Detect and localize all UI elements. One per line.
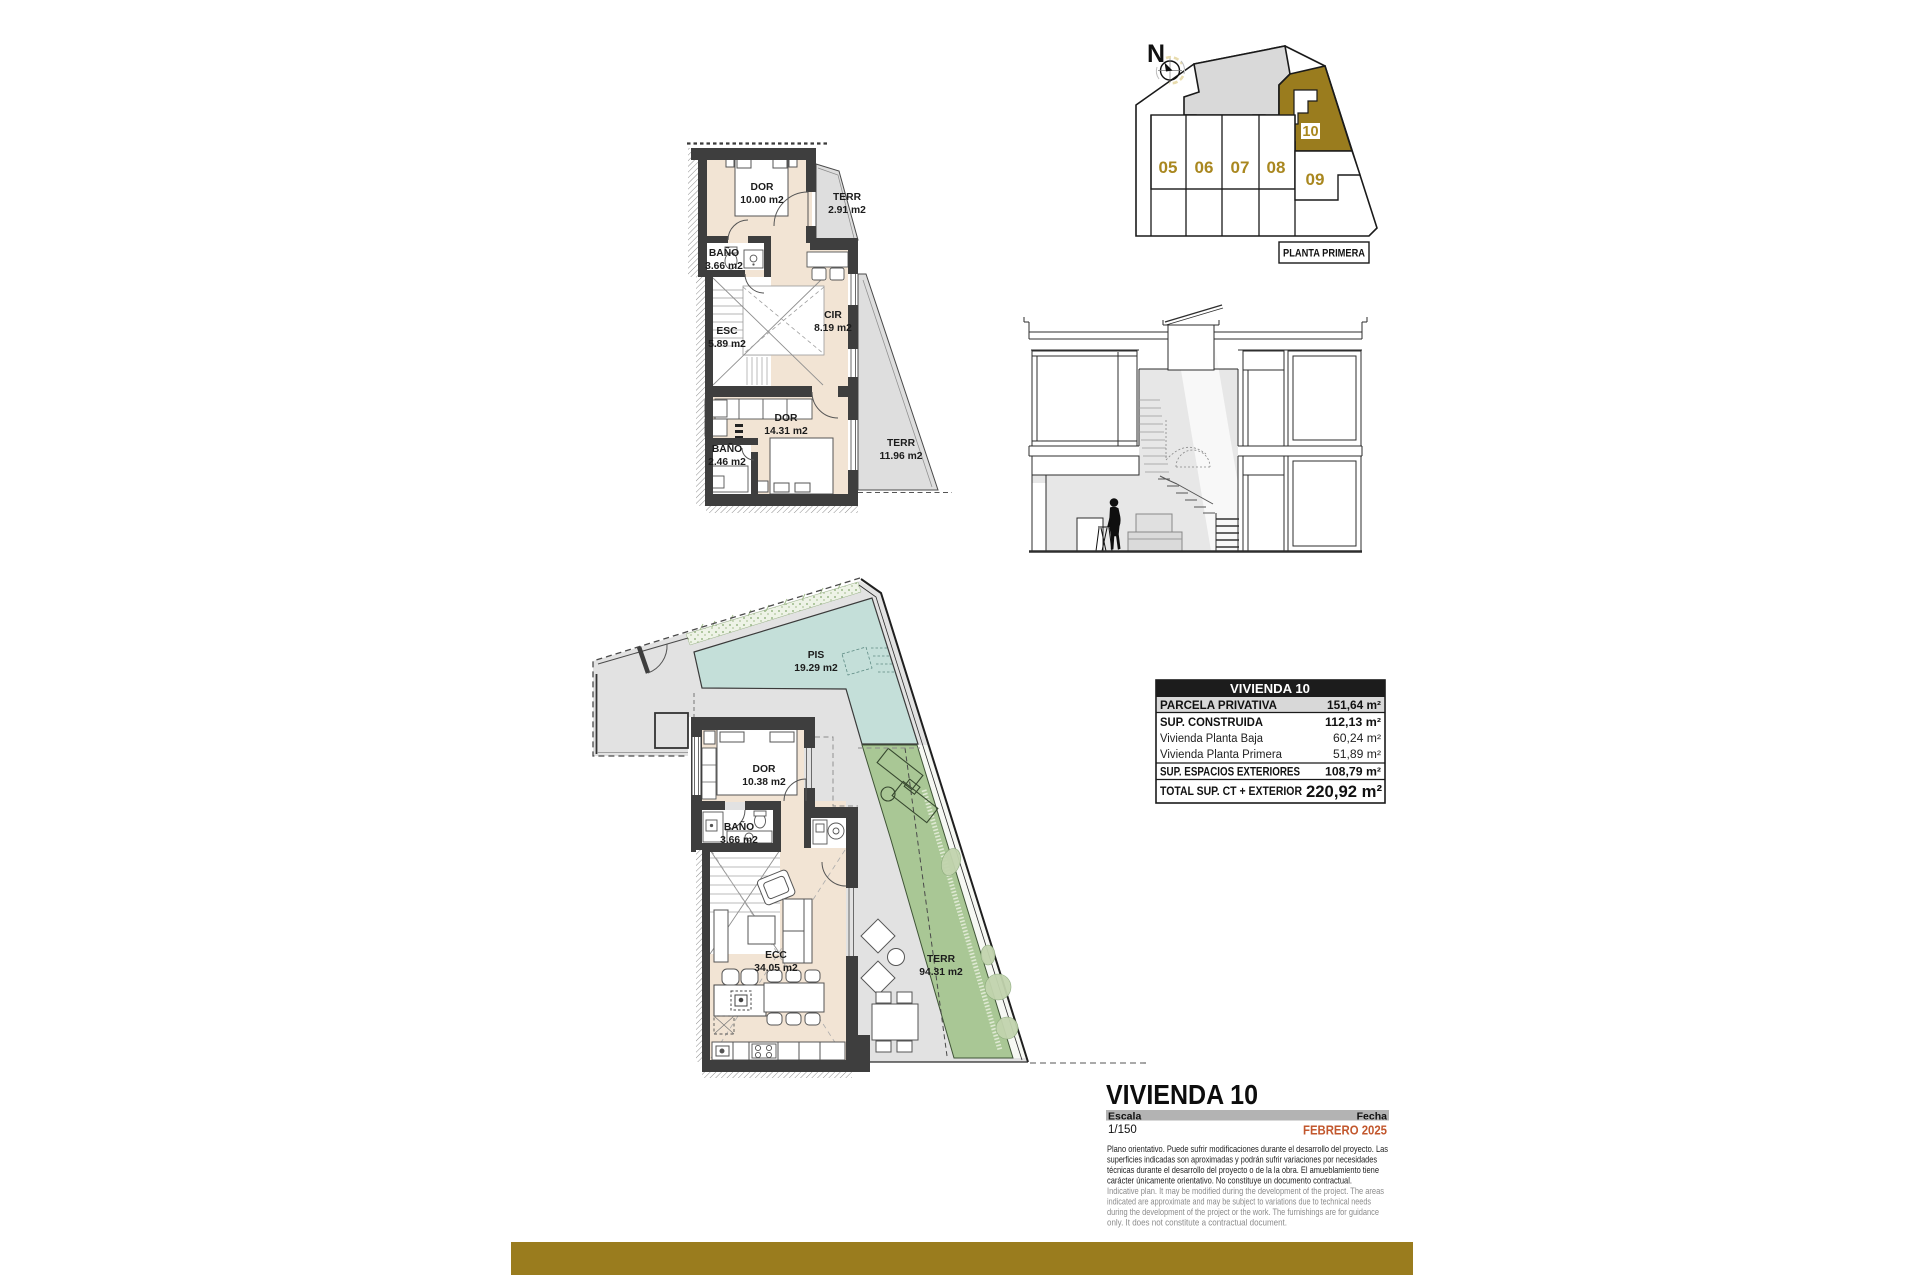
svg-text:Plano orientativo. Puede sufri: Plano orientativo. Puede sufrir modifica… <box>1107 1143 1388 1154</box>
svg-text:8.19 m2: 8.19 m2 <box>814 323 852 334</box>
svg-text:19.29 m2: 19.29 m2 <box>794 663 838 674</box>
svg-text:only. It does not constitute a: only. It does not constitute a contractu… <box>1107 1217 1287 1228</box>
svg-text:10: 10 <box>1302 124 1318 140</box>
svg-text:ECC: ECC <box>765 950 787 961</box>
svg-text:DOR: DOR <box>775 413 798 424</box>
svg-text:108,79 m²: 108,79 m² <box>1325 767 1381 779</box>
svg-text:151,64 m²: 151,64 m² <box>1327 700 1381 712</box>
svg-text:3.66 m2: 3.66 m2 <box>720 835 758 846</box>
svg-text:DOR: DOR <box>751 182 774 193</box>
svg-text:112,13 m²: 112,13 m² <box>1325 717 1381 729</box>
svg-text:51,89 m²: 51,89 m² <box>1333 749 1381 761</box>
svg-text:2.46 m2: 2.46 m2 <box>708 457 746 468</box>
svg-text:220,92 m²: 220,92 m² <box>1306 783 1383 801</box>
svg-text:34.05 m2: 34.05 m2 <box>754 963 798 974</box>
svg-text:TOTAL SUP. CT + EXTERIOR: TOTAL SUP. CT + EXTERIOR <box>1160 784 1302 798</box>
svg-text:5.89 m2: 5.89 m2 <box>708 339 746 350</box>
svg-text:09: 09 <box>1306 170 1325 189</box>
svg-text:07: 07 <box>1231 158 1250 177</box>
svg-text:Indicative plan. It may be mod: Indicative plan. It may be modified duri… <box>1107 1185 1384 1196</box>
svg-text:BAÑO: BAÑO <box>712 442 742 455</box>
svg-text:1/150: 1/150 <box>1108 1124 1137 1136</box>
svg-text:CIR: CIR <box>824 310 842 321</box>
svg-text:94.31 m2: 94.31 m2 <box>919 967 963 978</box>
svg-text:BAÑO: BAÑO <box>709 246 739 259</box>
svg-text:11.96 m2: 11.96 m2 <box>880 451 923 462</box>
svg-text:BAÑO: BAÑO <box>724 820 754 833</box>
svg-text:indicated are approximate and: indicated are approximate and may be sub… <box>1107 1196 1371 1207</box>
svg-text:08: 08 <box>1267 158 1286 177</box>
svg-text:Escala: Escala <box>1108 1111 1141 1123</box>
svg-text:2.91 m2: 2.91 m2 <box>828 205 866 216</box>
svg-text:TERR: TERR <box>927 954 956 965</box>
svg-text:05: 05 <box>1159 158 1178 177</box>
svg-text:PIS: PIS <box>808 650 825 661</box>
svg-text:TERR: TERR <box>887 438 916 449</box>
svg-text:ESC: ESC <box>716 326 738 337</box>
svg-text:VIVIENDA 10: VIVIENDA 10 <box>1106 1079 1258 1110</box>
svg-text:SUP. ESPACIOS EXTERIORES: SUP. ESPACIOS EXTERIORES <box>1160 767 1300 779</box>
svg-text:TERR: TERR <box>833 192 862 203</box>
svg-text:Fecha: Fecha <box>1357 1111 1388 1123</box>
svg-text:Vivienda Planta Primera: Vivienda Planta Primera <box>1160 749 1283 761</box>
svg-text:60,24 m²: 60,24 m² <box>1333 733 1381 745</box>
svg-text:superficies indicadas son apro: superficies indicadas son aproximadas y … <box>1107 1154 1377 1165</box>
svg-text:Vivienda Planta Baja: Vivienda Planta Baja <box>1160 733 1264 745</box>
svg-text:PLANTA PRIMERA: PLANTA PRIMERA <box>1283 248 1365 260</box>
svg-text:DOR: DOR <box>753 764 776 775</box>
svg-text:06: 06 <box>1195 158 1214 177</box>
svg-text:10.38 m2: 10.38 m2 <box>742 777 786 788</box>
svg-text:carácter únicamente orientativ: carácter únicamente orientativo. No cons… <box>1107 1175 1352 1186</box>
svg-text:14.31 m2: 14.31 m2 <box>764 426 808 437</box>
svg-text:VIVIENDA 10: VIVIENDA 10 <box>1230 682 1310 696</box>
svg-text:10.00 m2: 10.00 m2 <box>740 195 784 206</box>
svg-text:PARCELA PRIVATIVA: PARCELA PRIVATIVA <box>1160 700 1277 712</box>
svg-text:FEBRERO 2025: FEBRERO 2025 <box>1303 1123 1387 1138</box>
svg-text:técnicas durante el desarrollo: técnicas durante el desarrollo del proye… <box>1107 1164 1379 1175</box>
svg-text:SUP. CONSTRUIDA: SUP. CONSTRUIDA <box>1160 717 1263 729</box>
svg-text:3.66 m2: 3.66 m2 <box>705 261 743 272</box>
svg-text:during the development of the: during the development of the project or… <box>1107 1206 1379 1217</box>
